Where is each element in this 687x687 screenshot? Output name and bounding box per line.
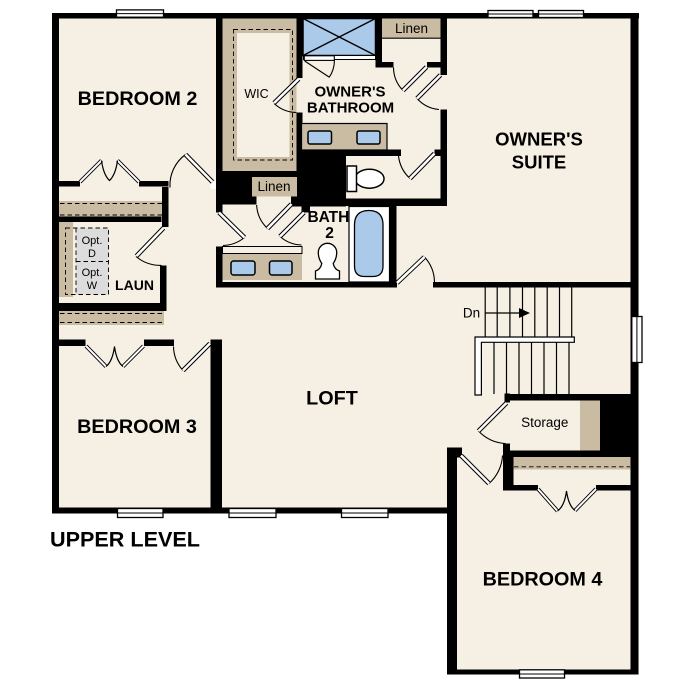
svg-text:LOFT: LOFT: [306, 388, 358, 410]
svg-text:OWNER'S: OWNER'S: [495, 129, 583, 150]
svg-text:Opt.: Opt.: [82, 235, 103, 247]
svg-text:UPPER LEVEL: UPPER LEVEL: [50, 527, 200, 552]
svg-text:BATHROOM: BATHROOM: [307, 100, 394, 117]
svg-text:BEDROOM 3: BEDROOM 3: [77, 416, 197, 438]
svg-text:WIC: WIC: [244, 87, 268, 101]
svg-text:BEDROOM 4: BEDROOM 4: [483, 569, 603, 591]
svg-text:LAUN: LAUN: [115, 277, 154, 293]
svg-text:Linen: Linen: [395, 21, 428, 36]
svg-text:Linen: Linen: [257, 179, 290, 194]
svg-text:Opt.: Opt.: [82, 267, 103, 279]
svg-text:Dn: Dn: [463, 306, 480, 321]
svg-text:SUITE: SUITE: [512, 152, 566, 173]
svg-text:OWNER'S: OWNER'S: [314, 84, 385, 101]
svg-text:2: 2: [325, 225, 334, 242]
svg-text:D: D: [88, 248, 96, 260]
svg-text:BEDROOM 2: BEDROOM 2: [78, 88, 198, 110]
svg-text:Storage: Storage: [521, 415, 568, 430]
svg-text:BATH: BATH: [307, 209, 349, 226]
svg-text:W: W: [87, 280, 98, 292]
